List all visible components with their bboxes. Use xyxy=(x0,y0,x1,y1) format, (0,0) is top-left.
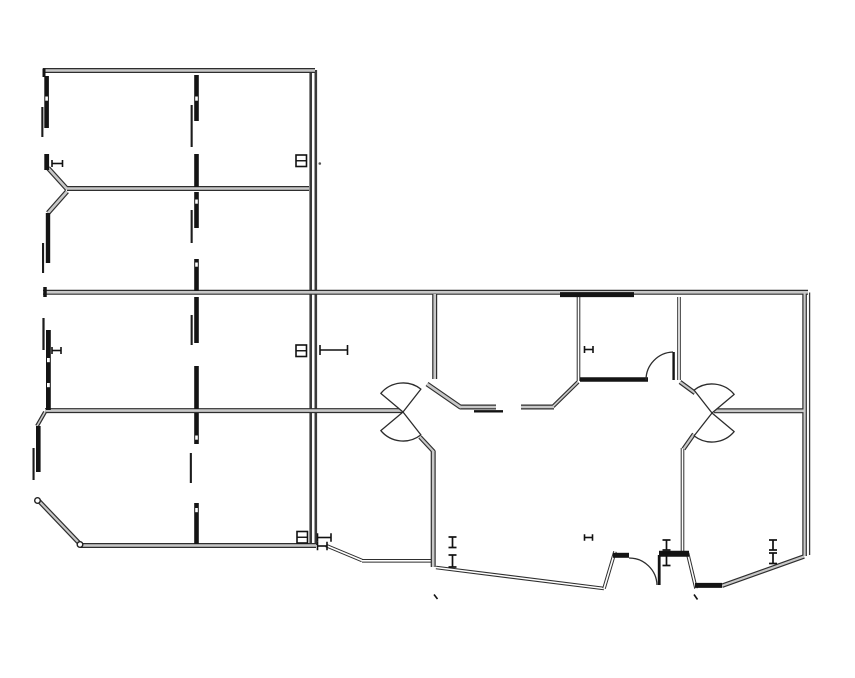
wall-stub-notch xyxy=(195,200,198,204)
double-acting-door-fan-icon xyxy=(381,412,421,441)
wall-stub-notch xyxy=(45,97,48,101)
wall-core xyxy=(420,437,434,452)
wall-stub-notch xyxy=(195,508,198,512)
double-acting-door-fan-icon xyxy=(694,413,734,442)
wall-core xyxy=(553,382,578,407)
wall-core xyxy=(48,192,67,214)
tick-mark xyxy=(694,595,698,600)
wall-core xyxy=(37,412,45,426)
wall-stub-bar xyxy=(194,297,199,343)
double-wall-core xyxy=(326,546,362,561)
wall-stub-notch xyxy=(195,97,198,101)
structural-walls-edges xyxy=(37,71,808,586)
stray-dot xyxy=(319,162,322,165)
wall-core xyxy=(38,500,80,544)
door-swing-arc-icon xyxy=(629,558,657,585)
partition-stub-bars xyxy=(33,75,199,544)
wall-stub-notch xyxy=(195,263,198,267)
thin-partition-walls xyxy=(311,70,810,555)
wall-stub-bar xyxy=(44,76,49,128)
node-circle-icon xyxy=(77,542,83,548)
wall-core xyxy=(722,557,804,586)
wall-stub-bar xyxy=(194,192,199,228)
wall-core xyxy=(680,382,695,393)
wall-stub-thin-bar xyxy=(190,453,192,483)
wall-stub-notch xyxy=(47,383,50,387)
wall-core xyxy=(48,168,67,189)
door-swing-arc-icon xyxy=(646,352,673,380)
double-wall-core xyxy=(688,553,697,589)
wall-stub-thin-bar xyxy=(33,448,35,480)
wall-stub-thin-bar xyxy=(191,315,193,345)
wall-stub-bar xyxy=(194,366,199,409)
wall-stub-thin-bar xyxy=(42,318,44,350)
tick-mark xyxy=(434,595,438,600)
wall-stub-thin-bar xyxy=(191,105,193,147)
floor-plan-canvas xyxy=(0,0,855,678)
wall-stub-bar xyxy=(44,154,49,170)
wall-stub-thin-bar xyxy=(42,243,44,273)
node-circle-icon xyxy=(35,498,41,504)
double-line-walls xyxy=(326,297,696,589)
structural-walls-cores xyxy=(37,71,808,586)
wall-stub-bar xyxy=(46,213,50,263)
floor-plan-page xyxy=(0,0,855,678)
wall-stub-thin-bar xyxy=(191,210,193,243)
wall-stub-bar xyxy=(36,426,41,472)
double-acting-door-fan-icon xyxy=(381,383,421,412)
wall-stub-bar xyxy=(194,154,199,187)
dark-wall-segments xyxy=(44,69,722,586)
double-wall-core xyxy=(436,568,604,589)
wall-core xyxy=(684,434,695,449)
annotation-symbols xyxy=(35,155,777,600)
wall-stub-notch xyxy=(47,358,50,362)
wall-stub-bar xyxy=(46,330,51,410)
wall-stub-notch xyxy=(195,436,198,440)
wall-stub-thin-bar xyxy=(41,107,43,137)
wall-core xyxy=(427,384,461,408)
